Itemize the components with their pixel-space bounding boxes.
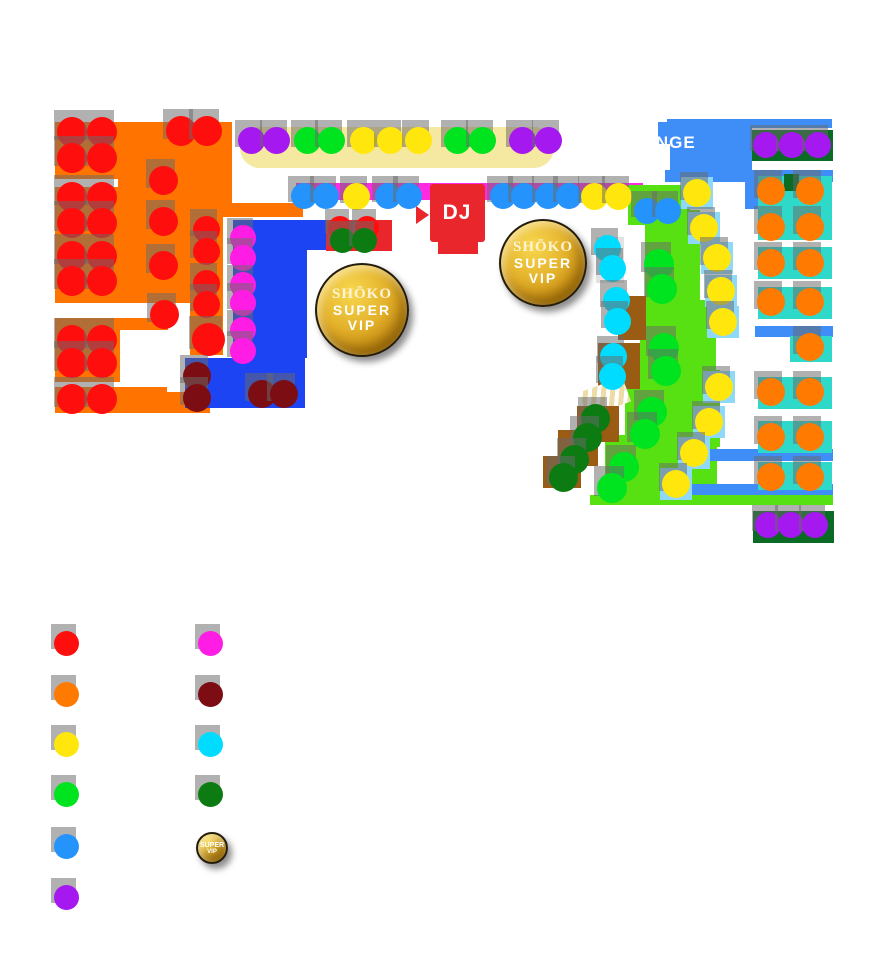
b-seat-dot bbox=[313, 183, 339, 209]
seat-dot[interactable] bbox=[149, 166, 178, 195]
seat-dot[interactable] bbox=[599, 363, 626, 390]
super-vip-badge: SHŌKOSUPERVIP bbox=[499, 219, 587, 307]
#a518f0-seat-dot bbox=[54, 885, 79, 910]
seat-dot[interactable] bbox=[469, 127, 496, 154]
seat-dot[interactable] bbox=[193, 291, 220, 318]
#ffe70d-seat-dot bbox=[54, 732, 79, 757]
r-seat-dot bbox=[87, 266, 117, 296]
seat-dot[interactable] bbox=[796, 463, 824, 491]
seat-dot[interactable] bbox=[796, 423, 824, 451]
r-seat-dot bbox=[87, 384, 117, 414]
o-seat-dot bbox=[757, 249, 785, 277]
badge-text: SUPER bbox=[333, 303, 391, 318]
#7c0d12-seat-dot bbox=[198, 682, 223, 707]
seat-dot[interactable] bbox=[352, 228, 377, 253]
dj-booth bbox=[438, 242, 478, 254]
y-seat-dot bbox=[350, 127, 377, 154]
r-seat-dot bbox=[192, 116, 222, 146]
seat-dot[interactable] bbox=[270, 380, 298, 408]
#0c7c12-seat-dot bbox=[198, 782, 223, 807]
y-seat-dot bbox=[405, 127, 432, 154]
seat-dot[interactable] bbox=[535, 127, 562, 154]
seat-dot[interactable] bbox=[549, 463, 578, 492]
seat-dot[interactable] bbox=[192, 116, 222, 146]
g-seat-dot bbox=[651, 356, 681, 386]
mr-seat-dot bbox=[270, 380, 298, 408]
seat-dot[interactable] bbox=[57, 266, 87, 296]
seat-dot[interactable] bbox=[709, 308, 737, 336]
#ff7a00-seat-dot bbox=[54, 682, 79, 707]
seat-dot[interactable] bbox=[796, 288, 824, 316]
badge-text: SHŌKO bbox=[513, 240, 573, 256]
club-seat-map: SHŌKOSUPERVIPSHŌKOSUPERVIPDJLOUNGESUPERV… bbox=[0, 0, 893, 964]
seat-dot[interactable] bbox=[396, 183, 422, 209]
p-seat-dot bbox=[802, 512, 828, 538]
#ff1ce4-seat-dot bbox=[198, 631, 223, 656]
seat-dot[interactable] bbox=[149, 251, 178, 280]
legend-dot-maroon bbox=[198, 682, 223, 707]
seat-dot[interactable] bbox=[757, 423, 785, 451]
y-seat-dot bbox=[705, 373, 733, 401]
badge-text: VIP bbox=[529, 271, 558, 286]
seat-dot[interactable] bbox=[230, 338, 256, 364]
o-seat-dot bbox=[757, 463, 785, 491]
seat-dot[interactable] bbox=[802, 512, 828, 538]
seat-dot[interactable] bbox=[757, 249, 785, 277]
seat-dot[interactable] bbox=[87, 384, 117, 414]
o-seat-dot bbox=[796, 249, 824, 277]
dg-seat-dot bbox=[352, 228, 377, 253]
seat-dot[interactable] bbox=[796, 378, 824, 406]
seat-dot[interactable] bbox=[605, 183, 632, 210]
#00dcff-seat-dot bbox=[198, 732, 223, 757]
b-seat-dot bbox=[655, 198, 681, 224]
r-seat-dot bbox=[149, 207, 178, 236]
seat-dot[interactable] bbox=[343, 183, 370, 210]
seat-dot[interactable] bbox=[350, 127, 377, 154]
seat-dot[interactable] bbox=[183, 384, 211, 412]
dj-label: DJ bbox=[443, 201, 472, 225]
badge-text: VIP bbox=[207, 849, 217, 855]
p-seat-dot bbox=[805, 132, 831, 158]
r-seat-dot bbox=[149, 251, 178, 280]
seat-dot[interactable] bbox=[87, 348, 117, 378]
p-seat-dot bbox=[535, 127, 562, 154]
o-seat-dot bbox=[757, 213, 785, 241]
y-seat-dot bbox=[662, 470, 690, 498]
legend-dot-green bbox=[54, 782, 79, 807]
o-seat-dot bbox=[796, 213, 824, 241]
seat-dot[interactable] bbox=[192, 323, 225, 356]
y-seat-dot bbox=[343, 183, 370, 210]
legend-dot-purple bbox=[54, 885, 79, 910]
seat-dot[interactable] bbox=[757, 177, 785, 205]
o-seat-dot bbox=[757, 423, 785, 451]
seat-dot[interactable] bbox=[662, 470, 690, 498]
#ff0e0e-seat-dot bbox=[54, 631, 79, 656]
seat-dot[interactable] bbox=[599, 255, 626, 282]
#2493fc-seat-dot bbox=[54, 834, 79, 859]
o-seat-dot bbox=[796, 288, 824, 316]
seat-dot[interactable] bbox=[796, 177, 824, 205]
m-seat-dot bbox=[230, 338, 256, 364]
r-seat-dot bbox=[57, 266, 87, 296]
c-seat-dot bbox=[604, 308, 631, 335]
r-seat-dot bbox=[193, 291, 220, 318]
c-seat-dot bbox=[599, 363, 626, 390]
r-seat-dot bbox=[192, 323, 225, 356]
o-seat-dot bbox=[796, 177, 824, 205]
seat-dot[interactable] bbox=[313, 183, 339, 209]
seat-dot[interactable] bbox=[655, 198, 681, 224]
badge-text: SUPER bbox=[514, 256, 572, 271]
o-seat-dot bbox=[757, 177, 785, 205]
g-seat-dot bbox=[469, 127, 496, 154]
seat-dot[interactable] bbox=[604, 308, 631, 335]
seat-dot[interactable] bbox=[318, 127, 345, 154]
seat-dot[interactable] bbox=[796, 213, 824, 241]
seat-dot[interactable] bbox=[805, 132, 831, 158]
seat-dot[interactable] bbox=[705, 373, 733, 401]
r-seat-dot bbox=[57, 143, 87, 173]
seat-dot[interactable] bbox=[87, 143, 117, 173]
seat-dot[interactable] bbox=[647, 274, 677, 304]
seat-dot[interactable] bbox=[757, 378, 785, 406]
badge-text: SHŌKO bbox=[332, 287, 392, 303]
g-seat-dot bbox=[318, 127, 345, 154]
o-seat-dot bbox=[796, 463, 824, 491]
g-seat-dot bbox=[647, 274, 677, 304]
c-seat-dot bbox=[599, 255, 626, 282]
legend-dot-blue bbox=[54, 834, 79, 859]
seat-dot[interactable] bbox=[377, 127, 404, 154]
lounge-label: LOUNGE bbox=[617, 133, 696, 153]
y-seat-dot bbox=[703, 244, 731, 272]
seat-dot[interactable] bbox=[149, 207, 178, 236]
legend-dot-darkgreen bbox=[198, 782, 223, 807]
r-seat-dot bbox=[150, 300, 179, 329]
y-seat-dot bbox=[709, 308, 737, 336]
seat-dot[interactable] bbox=[796, 249, 824, 277]
p-seat-dot bbox=[263, 127, 290, 154]
r-seat-dot bbox=[193, 238, 220, 265]
r-seat-dot bbox=[149, 166, 178, 195]
seat-dot[interactable] bbox=[597, 473, 627, 503]
y-seat-dot bbox=[605, 183, 632, 210]
g-seat-dot bbox=[597, 473, 627, 503]
seat-dot[interactable] bbox=[757, 288, 785, 316]
r-seat-dot bbox=[57, 348, 87, 378]
mr-seat-dot bbox=[183, 384, 211, 412]
seat-dot[interactable] bbox=[796, 333, 824, 361]
legend-dot-red bbox=[54, 631, 79, 656]
seat-dot[interactable] bbox=[405, 127, 432, 154]
y-seat-dot bbox=[377, 127, 404, 154]
o-seat-dot bbox=[757, 288, 785, 316]
seat-dot[interactable] bbox=[150, 300, 179, 329]
#00e41f-seat-dot bbox=[54, 782, 79, 807]
badge-text: SUPER bbox=[200, 842, 224, 849]
o-seat-dot bbox=[796, 423, 824, 451]
legend-dot-cyan bbox=[198, 732, 223, 757]
r-seat-dot bbox=[57, 384, 87, 414]
seat-dot[interactable] bbox=[193, 238, 220, 265]
dg-seat-dot bbox=[549, 463, 578, 492]
legend-dot-yellow bbox=[54, 732, 79, 757]
r-seat-dot bbox=[87, 348, 117, 378]
legend-dot-orange bbox=[54, 682, 79, 707]
legend-super-vip-badge: SUPERVIP bbox=[196, 832, 228, 864]
b-seat-dot bbox=[396, 183, 422, 209]
seat-dot[interactable] bbox=[651, 356, 681, 386]
super-vip-badge: SHŌKOSUPERVIP bbox=[315, 263, 409, 357]
seat-dot[interactable] bbox=[57, 143, 87, 173]
seat-dot[interactable] bbox=[57, 348, 87, 378]
seat-dot[interactable] bbox=[757, 213, 785, 241]
seat-dot[interactable] bbox=[757, 463, 785, 491]
seat-dot[interactable] bbox=[87, 266, 117, 296]
y-seat-dot bbox=[683, 179, 711, 207]
seat-dot[interactable] bbox=[263, 127, 290, 154]
o-seat-dot bbox=[757, 378, 785, 406]
legend-dot-magenta bbox=[198, 631, 223, 656]
o-seat-dot bbox=[796, 378, 824, 406]
seat-dot[interactable] bbox=[57, 384, 87, 414]
seat-dot[interactable] bbox=[703, 244, 731, 272]
o-seat-dot bbox=[796, 333, 824, 361]
seat-dot[interactable] bbox=[683, 179, 711, 207]
r-seat-dot bbox=[87, 143, 117, 173]
badge-text: VIP bbox=[348, 318, 377, 333]
